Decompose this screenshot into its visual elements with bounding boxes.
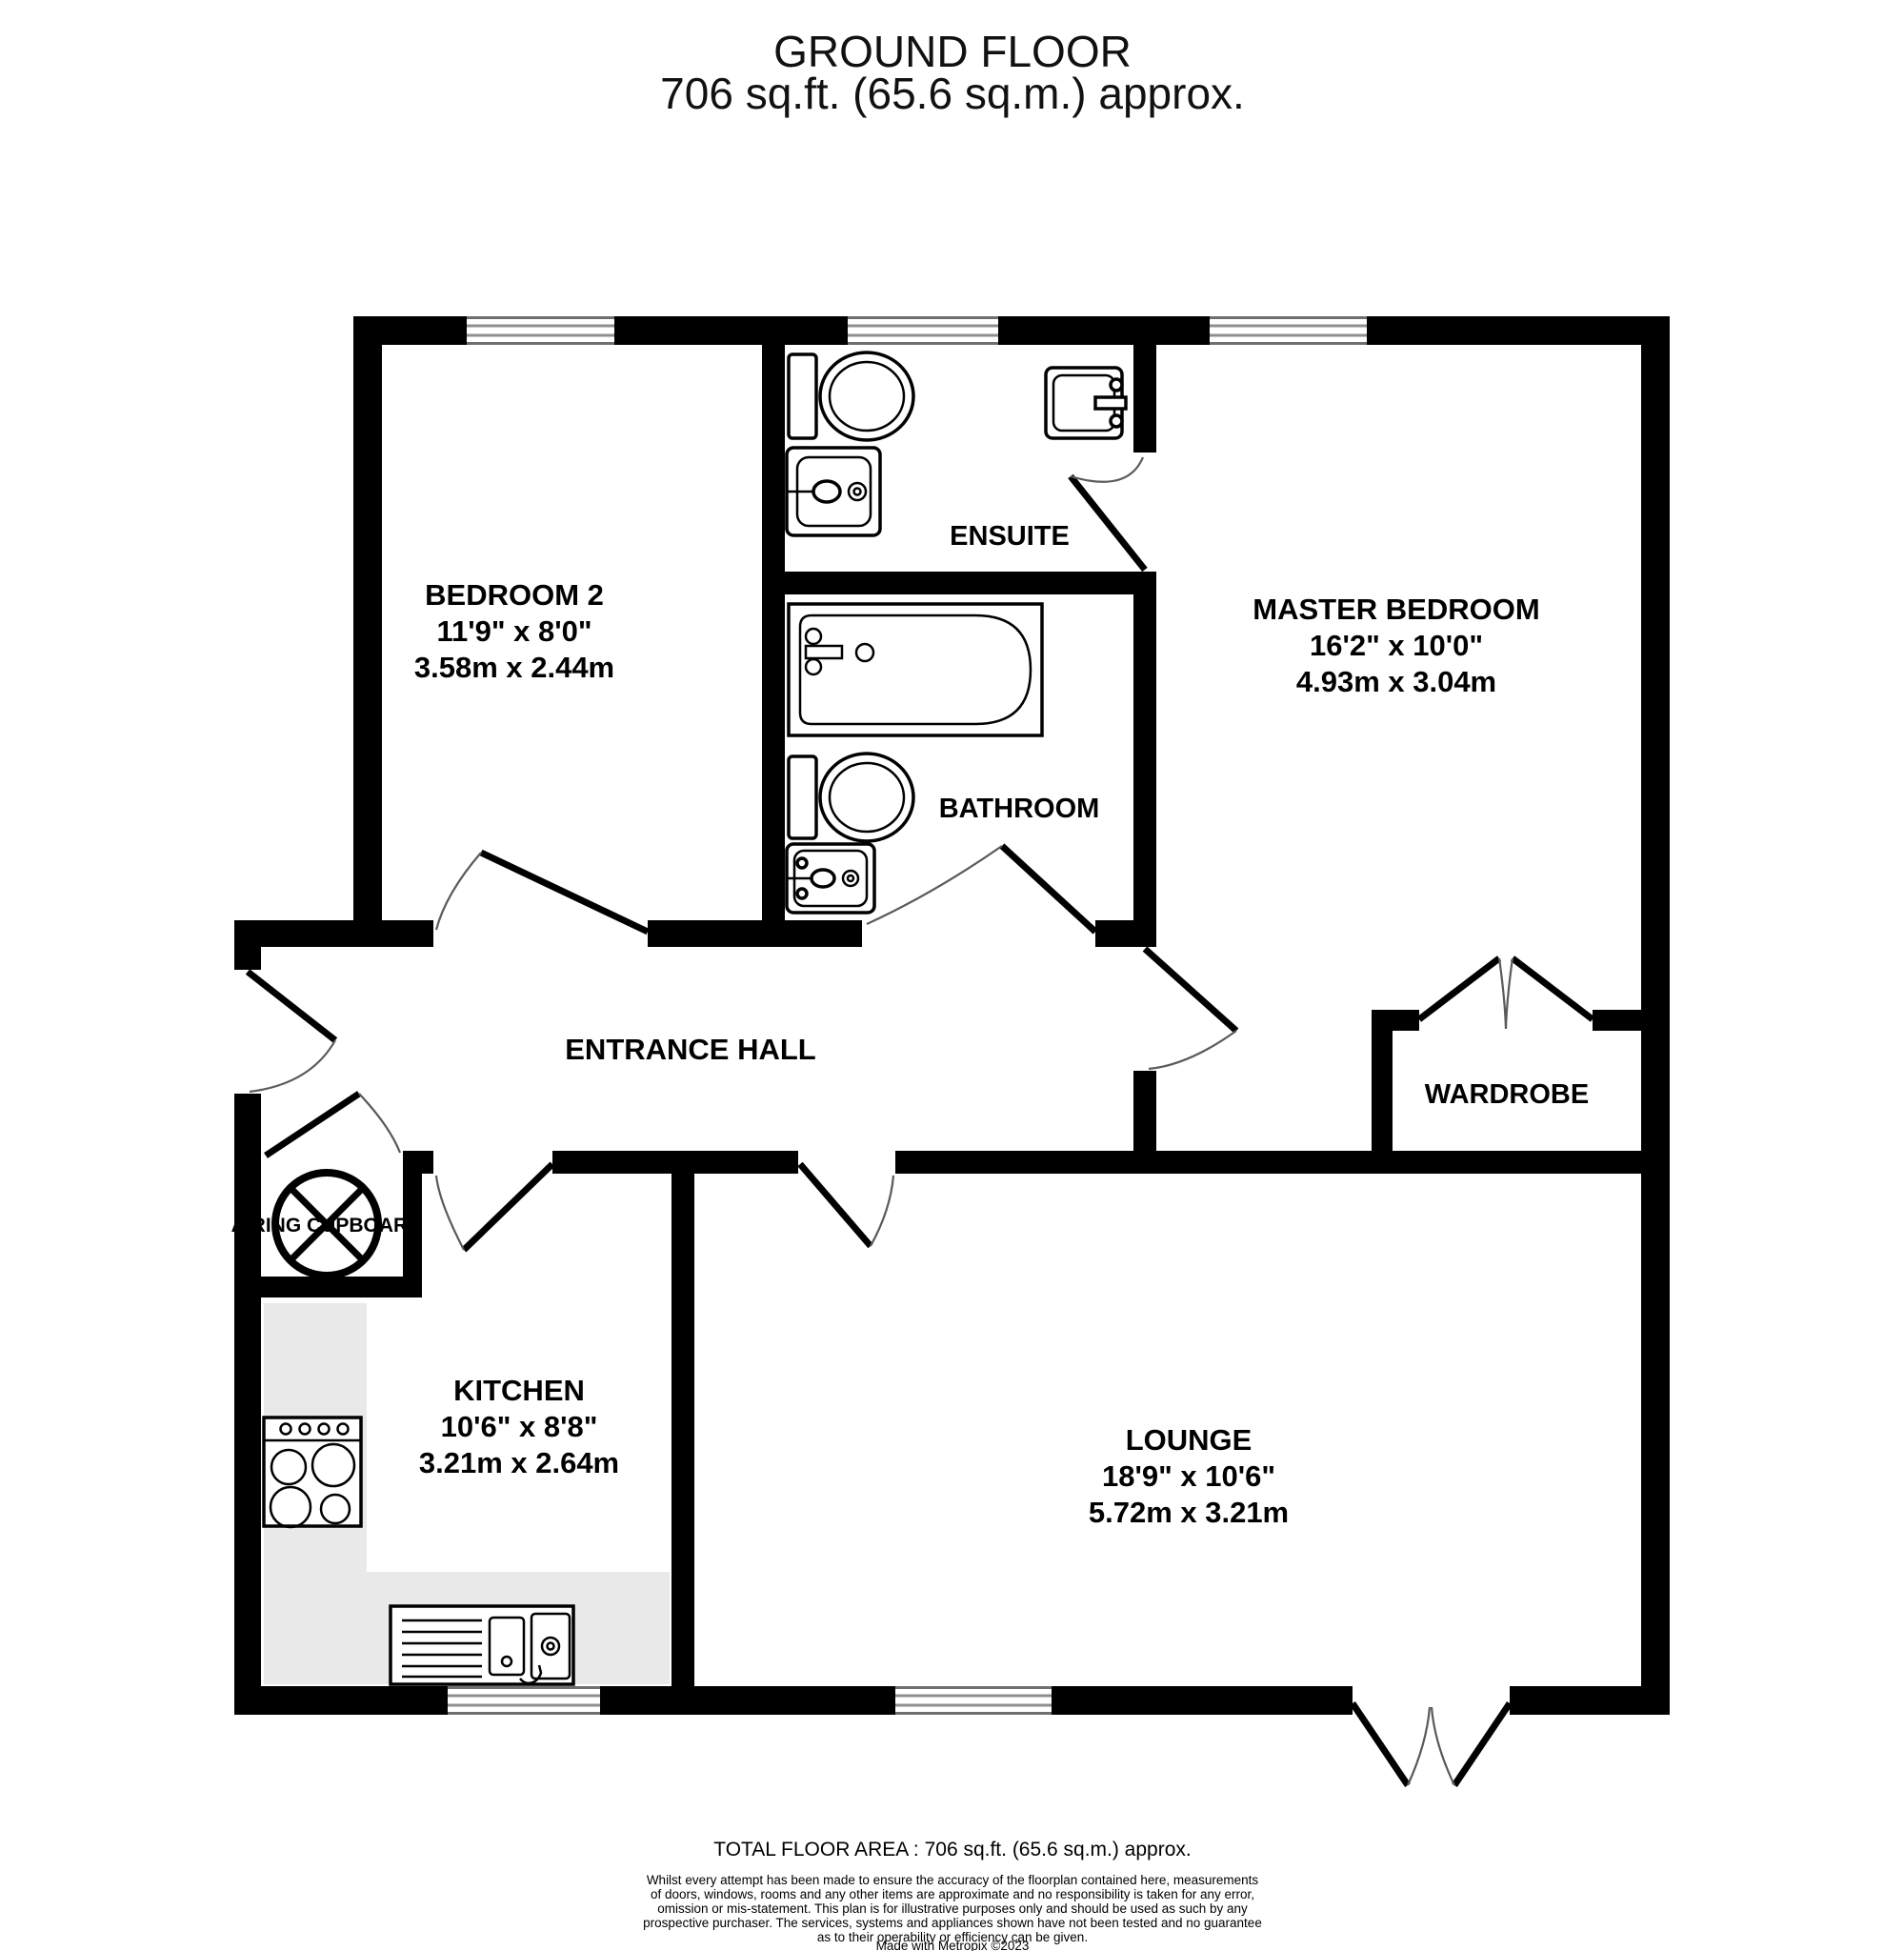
ensuite-label: ENSUITE bbox=[950, 521, 1070, 552]
kitchen-door bbox=[436, 1164, 552, 1250]
entrance-hall-label: ENTRANCE HALL bbox=[565, 1033, 816, 1066]
bathroom-label: BATHROOM bbox=[939, 794, 1100, 824]
svg-text:KITCHEN: KITCHEN bbox=[453, 1374, 585, 1407]
fixtures bbox=[264, 352, 1126, 1684]
lounge-label: LOUNGE 18'9" x 10'6" 5.72m x 3.21m bbox=[1089, 1423, 1289, 1529]
svg-text:3.58m x 2.44m: 3.58m x 2.44m bbox=[414, 651, 614, 684]
floorplan-page: GROUND FLOOR 706 sq.ft. (65.6 sq.m.) app… bbox=[0, 0, 1904, 1951]
svg-text:5.72m x 3.21m: 5.72m x 3.21m bbox=[1089, 1496, 1289, 1529]
svg-text:4.93m x 3.04m: 4.93m x 3.04m bbox=[1296, 665, 1496, 698]
bedroom2-label: BEDROOM 2 11'9" x 8'0" 3.58m x 2.44m bbox=[414, 578, 614, 684]
ensuite-door bbox=[1071, 457, 1145, 570]
sink-icon bbox=[787, 448, 880, 535]
floorplan-drawing: GROUND FLOOR 706 sq.ft. (65.6 sq.m.) app… bbox=[0, 0, 1904, 1951]
window-icon bbox=[848, 316, 998, 345]
wardrobe-label: WARDROBE bbox=[1425, 1079, 1589, 1110]
airing-cupboard-door bbox=[266, 1094, 400, 1156]
bathtub-icon bbox=[789, 604, 1042, 735]
disclaimer-line: prospective purchaser. The services, sys… bbox=[643, 1916, 1262, 1930]
kitchen-sink-drainer-icon bbox=[391, 1606, 573, 1684]
window-icon bbox=[1210, 316, 1367, 345]
svg-text:3.21m x 2.64m: 3.21m x 2.64m bbox=[419, 1446, 619, 1479]
window-icon bbox=[895, 1686, 1052, 1715]
toilet-icon bbox=[789, 754, 913, 841]
metropix-credit: Made with Metropix ©2023 bbox=[876, 1939, 1030, 1951]
wardrobe-double-doors bbox=[1419, 958, 1593, 1029]
plan-title: GROUND FLOOR 706 sq.ft. (65.6 sq.m.) app… bbox=[660, 27, 1245, 118]
toilet-icon bbox=[789, 352, 913, 440]
svg-text:LOUNGE: LOUNGE bbox=[1126, 1423, 1253, 1457]
bathroom-door bbox=[867, 846, 1095, 932]
kitchen-label: KITCHEN 10'6" x 8'8" 3.21m x 2.64m bbox=[419, 1374, 619, 1479]
sink-icon bbox=[787, 844, 874, 913]
total-floor-area: TOTAL FLOOR AREA : 706 sq.ft. (65.6 sq.m… bbox=[713, 1839, 1191, 1860]
lounge-door bbox=[800, 1164, 893, 1246]
svg-text:BEDROOM 2: BEDROOM 2 bbox=[425, 578, 604, 612]
svg-text:11'9" x 8'0": 11'9" x 8'0" bbox=[436, 614, 591, 648]
disclaimer-line: omission or mis-statement. This plan is … bbox=[657, 1901, 1248, 1916]
plan-footer: TOTAL FLOOR AREA : 706 sq.ft. (65.6 sq.m… bbox=[643, 1839, 1262, 1951]
title-line2: 706 sq.ft. (65.6 sq.m.) approx. bbox=[660, 69, 1245, 118]
svg-text:18'9" x 10'6": 18'9" x 10'6" bbox=[1102, 1459, 1275, 1493]
bedroom2-door bbox=[436, 853, 648, 932]
master-bedroom-door bbox=[1145, 949, 1236, 1069]
disclaimer-line: Whilst every attempt has been made to en… bbox=[647, 1873, 1259, 1887]
sink-icon bbox=[1046, 368, 1126, 438]
master-bedroom-label: MASTER BEDROOM 16'2" x 10'0" 4.93m x 3.0… bbox=[1253, 593, 1539, 698]
french-doors bbox=[1353, 1703, 1510, 1785]
window-icon bbox=[467, 316, 614, 345]
disclaimer-line: of doors, windows, rooms and any other i… bbox=[651, 1887, 1254, 1901]
svg-text:16'2" x 10'0": 16'2" x 10'0" bbox=[1310, 629, 1483, 662]
entrance-door bbox=[248, 972, 335, 1092]
window-icon bbox=[448, 1686, 600, 1715]
svg-text:10'6" x 8'8": 10'6" x 8'8" bbox=[441, 1410, 598, 1443]
svg-text:MASTER BEDROOM: MASTER BEDROOM bbox=[1253, 593, 1539, 626]
stove-icon bbox=[264, 1418, 361, 1527]
